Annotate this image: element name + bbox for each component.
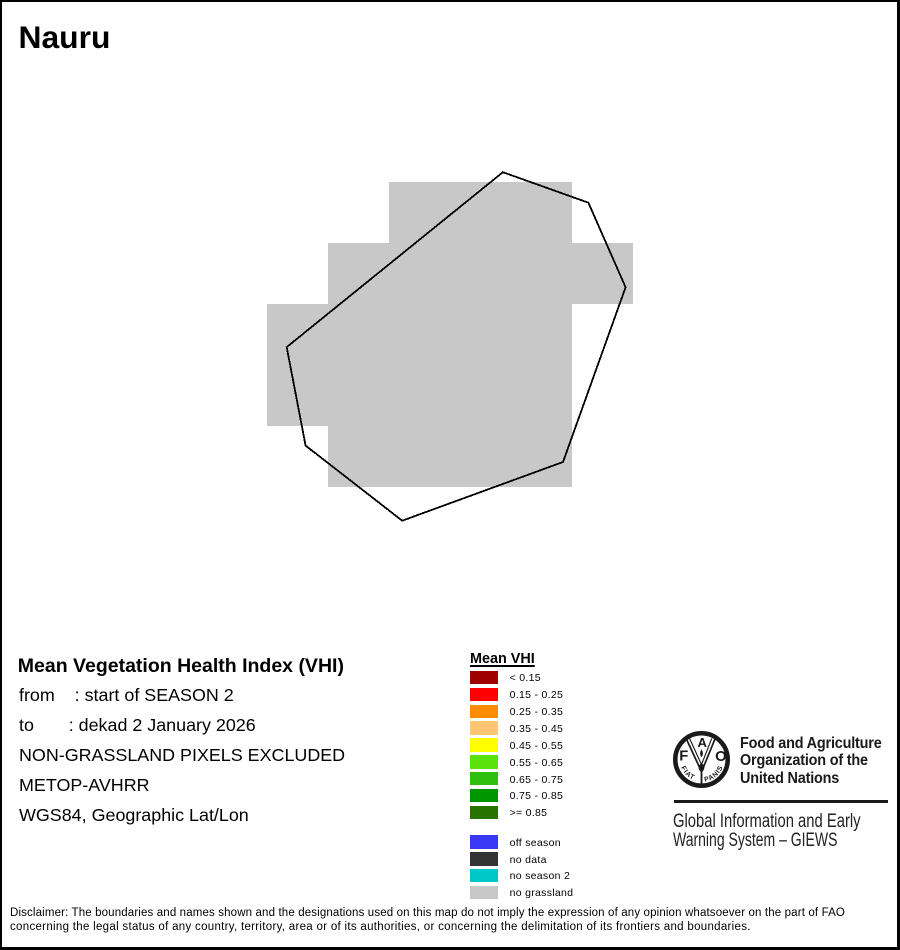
svg-text:A: A: [697, 735, 707, 750]
svg-text:O: O: [715, 749, 727, 765]
svg-text:F: F: [679, 748, 688, 764]
